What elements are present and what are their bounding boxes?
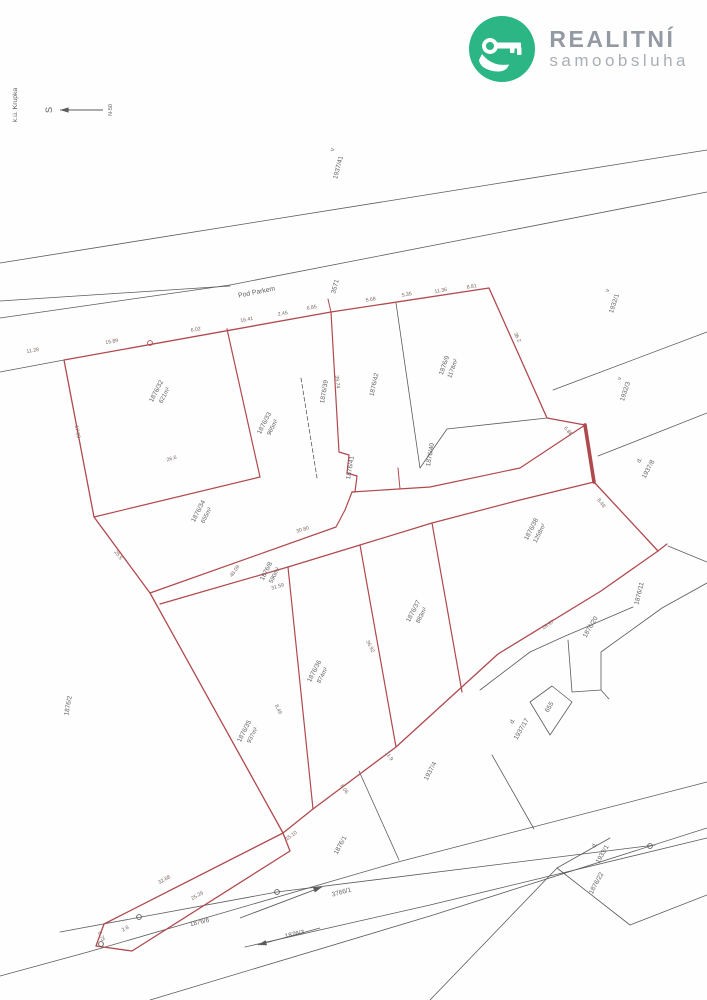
measurement-label: 11.36 — [434, 287, 448, 295]
measurement-label: 6.88 — [562, 426, 573, 438]
logo-text: REALITNÍ samoobsluha — [549, 27, 689, 71]
parcel-boundary-line — [245, 838, 707, 947]
cadastral-area-label: k.ú. Krupka — [12, 88, 19, 123]
north-arrow-head — [60, 107, 69, 112]
measurement-label: 5.68 — [365, 296, 376, 304]
parcel-boundary-line — [0, 150, 707, 263]
measurement-label: 32.68 — [157, 874, 171, 886]
landuse-mark: v — [617, 376, 624, 381]
new-boundary-red-line — [150, 425, 585, 593]
parcel-boundary-line — [492, 755, 534, 829]
measurement-label: 15.10 — [284, 830, 298, 842]
measurement-label: 11.9 — [384, 751, 395, 762]
new-boundary-red-line — [288, 567, 313, 809]
neighbor-parcel-label-3571: 3571 — [330, 278, 341, 294]
logo: REALITNÍ samoobsluha — [469, 16, 689, 82]
road-name-label: Pod Parkem — [238, 285, 276, 299]
parcel-boundary-line — [60, 845, 655, 932]
neighbor-parcel-label-1937-41: 1937/41 — [332, 155, 345, 180]
parcel-boundary-line — [598, 413, 707, 456]
neighbor-parcel-label-1876-1: 1876/1 — [333, 835, 349, 856]
old-boundary-dashed-line — [301, 378, 317, 478]
neighbor-parcel-label-3766-1: 3766/1 — [331, 886, 352, 898]
logo-title: REALITNÍ — [549, 27, 689, 51]
neighbor-parcel-label-1876-22: 1876/22 — [588, 871, 605, 895]
new-boundary-red-line — [94, 477, 260, 517]
parcel-label-1876-42: 1876/42 — [369, 372, 381, 397]
measurement-label: 8.48 — [595, 498, 606, 510]
parcel-boundary-line — [420, 418, 547, 468]
north-label: S — [44, 107, 54, 113]
parcel-1876-3-arrow-head — [258, 940, 267, 945]
parcel-boundary-line — [430, 868, 557, 1000]
parcel-boundary-line — [557, 868, 630, 925]
parcel-boundary-line — [396, 303, 420, 468]
neighbor-parcel-label-1932-1: 1932/1 — [608, 293, 621, 314]
north-scale-label: N-50 — [108, 104, 114, 116]
parcel-boundary-line — [601, 690, 609, 699]
survey-point-marker — [99, 942, 104, 947]
parcel-boundary-line — [0, 360, 64, 372]
new-boundary-red-line — [328, 299, 331, 312]
measurement-label: 25.29 — [190, 890, 204, 902]
measurement-label: 36.92 — [364, 639, 375, 653]
measurement-label: 6.85 — [306, 304, 317, 312]
neighbor-parcel-label-655: 655 — [544, 700, 556, 713]
measurement-label: 6.02 — [190, 326, 201, 334]
logo-subtitle: samoobsluha — [549, 51, 689, 71]
measurement-label: 2.45 — [277, 310, 288, 318]
neighbor-parcel-label-1932-3: 1932/3 — [619, 381, 632, 402]
measurement-label: 39.74 — [333, 375, 340, 389]
parcel-boundary-line — [359, 771, 399, 860]
new-boundary-red-line — [160, 482, 594, 604]
parcel-boundary-line — [553, 332, 707, 390]
neighbor-parcel-label-1937-8: 1937/8 — [641, 459, 657, 480]
measurement-label: 8.49 — [273, 704, 283, 716]
parcel-boundary-line — [0, 192, 707, 318]
parcel-boundary-line — [480, 607, 633, 690]
new-boundary-red-line — [432, 523, 462, 692]
new-boundary-red-line — [227, 329, 260, 477]
new-boundary-red-line — [398, 468, 400, 489]
neighbor-parcel-label-1937-4: 1937/4 — [423, 761, 439, 782]
cadastral-map: 1876/32621m²1876/33965m²1876/391876/4218… — [0, 0, 707, 1000]
key-in-hand-icon — [469, 16, 535, 82]
landuse-mark: d. — [636, 457, 644, 465]
measurement-label: 5.35 — [401, 291, 412, 299]
neighbor-parcel-label-1876-11: 1876/11 — [633, 581, 645, 605]
new-boundary-red-line — [585, 425, 594, 482]
measurement-label: 17.09 — [73, 425, 81, 439]
parcel-boundary-line — [0, 286, 230, 301]
parcel-boundary-line — [630, 895, 707, 925]
measurement-label: 25.5 — [112, 550, 123, 562]
landuse-mark: v — [605, 288, 612, 293]
neighbor-parcel-label-1876-2: 1876/2 — [63, 695, 73, 716]
parcel-label-1876-41: 1876/41 — [345, 455, 356, 480]
new-boundary-red-line — [360, 545, 396, 747]
new-boundary-red-line — [96, 833, 290, 951]
road-direction-arrow-head — [313, 887, 322, 893]
measurement-label: 26.6 — [166, 455, 178, 464]
parcel-boundary-line — [668, 546, 707, 562]
measurement-label: 11.28 — [26, 347, 40, 355]
measurement-label: 48.09 — [229, 564, 241, 578]
neighbor-parcel-label-1876-3: 1876/3 — [284, 929, 305, 940]
measurement-label: 30.80 — [296, 525, 310, 535]
measurement-label: 15.89 — [105, 338, 119, 346]
landuse-mark: d. — [509, 718, 517, 726]
new-boundary-red-line — [64, 288, 658, 833]
parcel-label-1876-39: 1876/39 — [319, 379, 330, 404]
geometric-plan-page: 1876/32621m²1876/33965m²1876/391876/4218… — [0, 0, 707, 1000]
new-boundary-red-line — [658, 544, 667, 551]
parcel-label-1876-40: 1876/40 — [425, 442, 436, 467]
landuse-mark: v — [330, 148, 337, 152]
measurement-label: 2.8 — [121, 925, 130, 934]
measurement-label: 16.41 — [240, 316, 254, 324]
neighbor-parcel-label-1876-20: 1876/20 — [582, 615, 600, 639]
neighbor-parcel-label-1876-6: 1876/6 — [189, 917, 210, 928]
measurement-label: 28.57 — [541, 619, 555, 631]
